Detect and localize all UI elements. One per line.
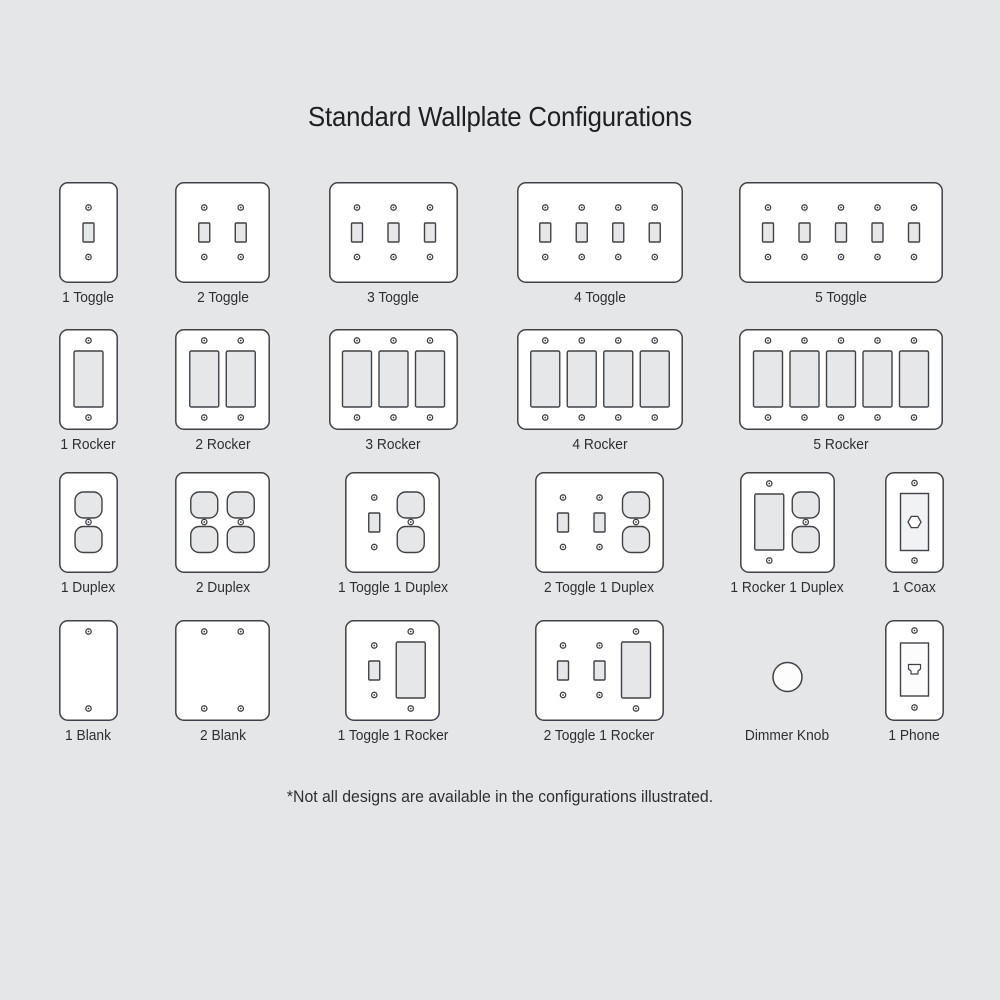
screw-icon [802, 254, 807, 259]
plate-graphic-5-rocker [739, 329, 943, 430]
duplex-outlet [227, 492, 254, 518]
screw-icon [579, 415, 584, 420]
rocker-switch [567, 351, 596, 407]
screw-icon [838, 205, 843, 210]
rocker-switch [604, 351, 633, 407]
plate-4-rocker: 4 Rocker [517, 329, 683, 430]
screw-icon [354, 254, 359, 259]
screw-icon [372, 643, 377, 648]
plate-1-toggle: 1 Toggle [59, 182, 118, 283]
screw-icon [616, 415, 621, 420]
duplex-outlet [397, 527, 424, 553]
screw-icon [560, 643, 565, 648]
screw-icon [408, 629, 413, 634]
toggle-switch [613, 223, 624, 242]
screw-icon [596, 692, 601, 697]
wallplate-outline [176, 621, 269, 720]
plate-graphic-1-toggle [59, 182, 118, 283]
duplex-outlet [227, 527, 254, 553]
screw-icon [652, 415, 657, 420]
toggle-switch [836, 223, 847, 242]
screw-icon [911, 338, 916, 343]
plate-2-duplex: 2 Duplex [175, 472, 270, 573]
plate-caption: 1 Toggle 1 Duplex [337, 580, 447, 596]
screw-icon [238, 629, 243, 634]
toggle-switch [351, 223, 362, 242]
screw-icon [803, 519, 808, 524]
plate-graphic-dimmer-knob [758, 620, 817, 721]
plate-graphic-1-coax [885, 472, 944, 573]
rocker-switch [531, 351, 560, 407]
screw-icon [238, 519, 243, 524]
plate-2-blank: 2 Blank [175, 620, 270, 721]
toggle-switch [199, 223, 210, 242]
screw-icon [875, 338, 880, 343]
rocker-switch [640, 351, 669, 407]
plate-caption: 2 Blank [200, 728, 246, 744]
screw-icon [372, 544, 377, 549]
rocker-switch [754, 351, 783, 407]
plate-caption: 4 Rocker [572, 437, 627, 453]
screw-icon [354, 205, 359, 210]
plate-3-rocker: 3 Rocker [329, 329, 458, 430]
plate-2-toggle-1-rocker: 2 Toggle 1 Rocker [535, 620, 664, 721]
screw-icon [354, 338, 359, 343]
screw-icon [633, 519, 638, 524]
screw-icon [579, 254, 584, 259]
screw-icon [543, 205, 548, 210]
screw-icon [372, 495, 377, 500]
duplex-outlet [792, 527, 819, 553]
rocker-switch [900, 351, 929, 407]
screw-icon [390, 415, 395, 420]
plate-graphic-2-toggle [175, 182, 270, 283]
toggle-switch [909, 223, 920, 242]
plate-caption: 1 Coax [892, 580, 936, 596]
screw-icon [202, 519, 207, 524]
screw-icon [596, 544, 601, 549]
screw-icon [427, 254, 432, 259]
plate-caption: 2 Toggle [197, 290, 249, 306]
plate-caption: 5 Rocker [813, 437, 868, 453]
plate-caption: 5 Toggle [815, 290, 867, 306]
screw-icon [579, 205, 584, 210]
plate-1-blank: 1 Blank [59, 620, 118, 721]
plate-1-phone: 1 Phone [885, 620, 944, 721]
rocker-switch [342, 351, 371, 407]
screw-icon [408, 519, 413, 524]
toggle-switch [799, 223, 810, 242]
screw-icon [875, 254, 880, 259]
rocker-switch [190, 351, 219, 407]
screw-icon [596, 643, 601, 648]
rocker-switch [74, 351, 103, 407]
screw-icon [85, 629, 90, 634]
plate-5-rocker: 5 Rocker [739, 329, 943, 430]
plate-caption: 1 Duplex [61, 580, 115, 596]
screw-icon [838, 415, 843, 420]
plate-graphic-1-rocker [59, 329, 118, 430]
plate-caption: 1 Blank [65, 728, 111, 744]
rocker-switch [827, 351, 856, 407]
screw-icon [408, 706, 413, 711]
coax-connector-icon [908, 516, 921, 527]
plate-caption: 2 Duplex [195, 580, 249, 596]
toggle-switch [83, 223, 94, 242]
duplex-outlet [397, 492, 424, 518]
screw-icon [238, 338, 243, 343]
rocker-switch [863, 351, 892, 407]
plate-caption: 2 Toggle 1 Rocker [544, 728, 655, 744]
toggle-switch [557, 661, 568, 680]
toggle-switch [424, 223, 435, 242]
screw-icon [560, 544, 565, 549]
screw-icon [543, 338, 548, 343]
rocker-switch [415, 351, 444, 407]
plate-caption: Dimmer Knob [745, 728, 829, 744]
plate-caption: 3 Toggle [367, 290, 419, 306]
screw-icon [652, 205, 657, 210]
plate-graphic-2-blank [175, 620, 270, 721]
screw-icon [616, 254, 621, 259]
plate-graphic-1-toggle-1-rocker [345, 620, 440, 721]
plate-graphic-2-toggle-1-rocker [535, 620, 664, 721]
duplex-outlet [622, 492, 649, 518]
screw-icon [911, 415, 916, 420]
screw-icon [802, 205, 807, 210]
duplex-outlet [792, 492, 819, 518]
toggle-switch [540, 223, 551, 242]
screw-icon [390, 338, 395, 343]
wallplate-outline [346, 473, 439, 572]
screw-icon [838, 254, 843, 259]
toggle-switch [557, 513, 568, 532]
screw-icon [911, 254, 916, 259]
screw-icon [616, 338, 621, 343]
plate-caption: 2 Toggle 1 Duplex [544, 580, 654, 596]
screw-icon [85, 415, 90, 420]
toggle-switch [872, 223, 883, 242]
toggle-switch [594, 513, 605, 532]
duplex-outlet [191, 492, 218, 518]
screw-icon [802, 415, 807, 420]
screw-icon [427, 205, 432, 210]
screw-icon [202, 254, 207, 259]
rocker-switch [226, 351, 255, 407]
screw-icon [238, 254, 243, 259]
toggle-switch [576, 223, 587, 242]
plate-1-rocker: 1 Rocker [59, 329, 118, 430]
wallplate-outline [176, 183, 269, 282]
toggle-switch [369, 513, 380, 532]
plate-2-toggle-1-duplex: 2 Toggle 1 Duplex [535, 472, 664, 573]
toggle-switch [763, 223, 774, 242]
screw-icon [202, 338, 207, 343]
screw-icon [765, 415, 770, 420]
screw-icon [202, 205, 207, 210]
screw-icon [579, 338, 584, 343]
screw-icon [85, 338, 90, 343]
screw-icon [765, 338, 770, 343]
screw-icon [390, 205, 395, 210]
rocker-switch [621, 642, 650, 698]
screw-icon [202, 415, 207, 420]
plate-caption: 1 Rocker [60, 437, 115, 453]
screw-icon [911, 705, 916, 710]
toggle-switch [649, 223, 660, 242]
rocker-switch [790, 351, 819, 407]
plate-1-coax: 1 Coax [885, 472, 944, 573]
plate-graphic-3-toggle [329, 182, 458, 283]
plate-1-toggle-1-duplex: 1 Toggle 1 Duplex [345, 472, 440, 573]
screw-icon [560, 495, 565, 500]
plate-graphic-5-toggle [739, 182, 943, 283]
screw-icon [390, 254, 395, 259]
screw-icon [616, 205, 621, 210]
screw-icon [652, 338, 657, 343]
screw-icon [238, 415, 243, 420]
plate-caption: 3 Rocker [365, 437, 420, 453]
plate-caption: 1 Toggle [62, 290, 114, 306]
footnote: *Not all designs are available in the co… [35, 787, 965, 807]
screw-icon [911, 480, 916, 485]
screw-icon [766, 481, 771, 486]
screw-icon [543, 254, 548, 259]
screw-icon [202, 706, 207, 711]
duplex-outlet [75, 527, 102, 553]
plate-graphic-1-duplex [59, 472, 118, 573]
plate-graphic-1-rocker-1-duplex [740, 472, 835, 573]
screw-icon [238, 706, 243, 711]
toggle-switch [235, 223, 246, 242]
screw-icon [372, 692, 377, 697]
plate-graphic-1-phone [885, 620, 944, 721]
plate-1-rocker-1-duplex: 1 Rocker 1 Duplex [740, 472, 835, 573]
screw-icon [765, 205, 770, 210]
screw-icon [652, 254, 657, 259]
screw-icon [911, 628, 916, 633]
plate-graphic-2-duplex [175, 472, 270, 573]
screw-icon [875, 205, 880, 210]
screw-icon [633, 706, 638, 711]
screw-icon [911, 205, 916, 210]
toggle-switch [388, 223, 399, 242]
wallplate-outline [176, 473, 269, 572]
plate-4-toggle: 4 Toggle [517, 182, 683, 283]
screw-icon [633, 629, 638, 634]
plate-grid: 1 Toggle2 Toggle3 Toggle4 Toggle5 Toggle… [0, 0, 1000, 780]
plate-graphic-4-toggle [517, 182, 683, 283]
plate-1-toggle-1-rocker: 1 Toggle 1 Rocker [345, 620, 440, 721]
screw-icon [766, 558, 771, 563]
plate-5-toggle: 5 Toggle [739, 182, 943, 283]
toggle-switch [369, 661, 380, 680]
plate-graphic-4-rocker [517, 329, 683, 430]
duplex-outlet [622, 527, 649, 553]
screw-icon [354, 415, 359, 420]
plate-caption: 4 Toggle [574, 290, 626, 306]
plate-graphic-3-rocker [329, 329, 458, 430]
screw-icon [202, 629, 207, 634]
screw-icon [838, 338, 843, 343]
screw-icon [85, 254, 90, 259]
screw-icon [85, 205, 90, 210]
screw-icon [427, 415, 432, 420]
rocker-switch [379, 351, 408, 407]
screw-icon [85, 706, 90, 711]
plate-graphic-1-blank [59, 620, 118, 721]
plate-caption: 1 Rocker 1 Duplex [730, 580, 843, 596]
screw-icon [560, 692, 565, 697]
plate-2-rocker: 2 Rocker [175, 329, 270, 430]
plate-3-toggle: 3 Toggle [329, 182, 458, 283]
dimmer-knob: Dimmer Knob [758, 620, 817, 721]
plate-caption: 1 Toggle 1 Rocker [337, 728, 448, 744]
screw-icon [427, 338, 432, 343]
screw-icon [543, 415, 548, 420]
screw-icon [911, 558, 916, 563]
plate-graphic-2-toggle-1-duplex [535, 472, 664, 573]
dimmer-knob-icon [773, 663, 802, 692]
screw-icon [765, 254, 770, 259]
screw-icon [802, 338, 807, 343]
plate-1-duplex: 1 Duplex [59, 472, 118, 573]
plate-caption: 1 Phone [888, 728, 939, 744]
wallplate-configurations-diagram: Standard Wallplate Configurations 1 Togg… [0, 0, 1000, 1000]
toggle-switch [594, 661, 605, 680]
screw-icon [875, 415, 880, 420]
rocker-switch [396, 642, 425, 698]
screw-icon [238, 205, 243, 210]
rocker-switch [754, 494, 783, 550]
duplex-outlet [191, 527, 218, 553]
plate-graphic-1-toggle-1-duplex [345, 472, 440, 573]
screw-icon [596, 495, 601, 500]
screw-icon [85, 519, 90, 524]
plate-caption: 2 Rocker [195, 437, 250, 453]
plate-graphic-2-rocker [175, 329, 270, 430]
duplex-outlet [75, 492, 102, 518]
plate-2-toggle: 2 Toggle [175, 182, 270, 283]
